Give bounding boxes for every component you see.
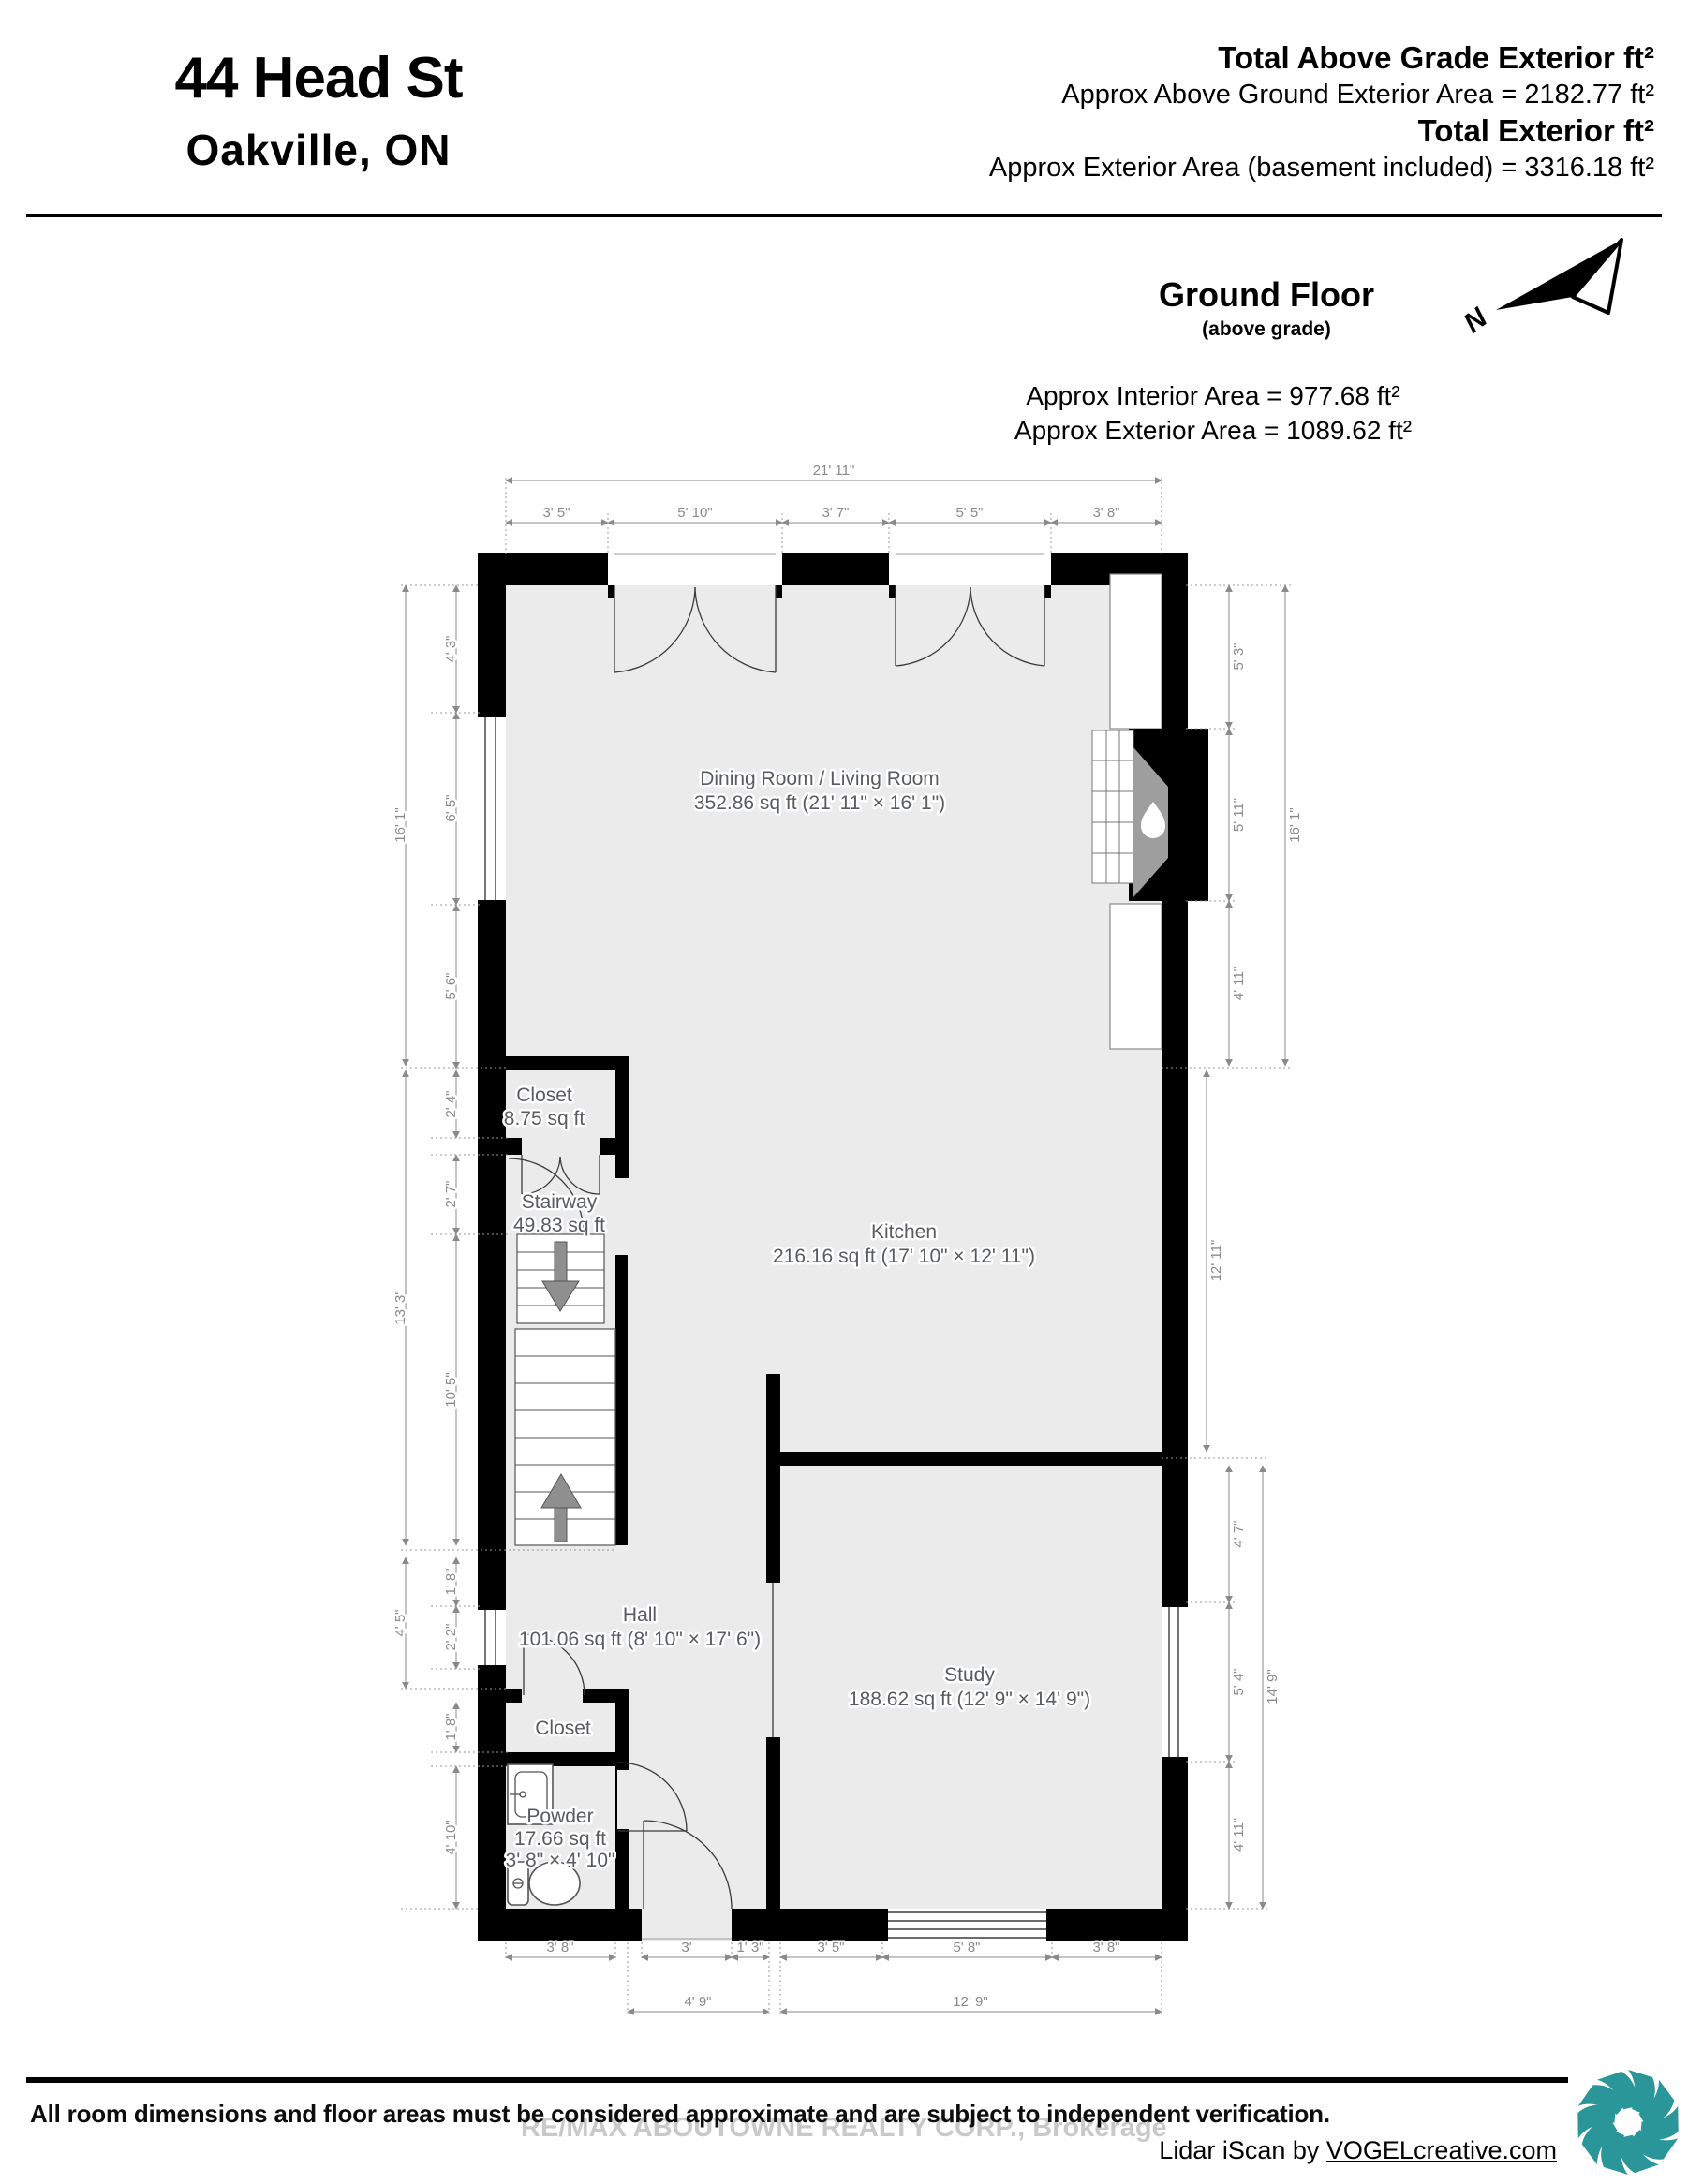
builtin-cabinet-bottom xyxy=(1110,904,1162,1049)
dim-left-6: 10' 5" xyxy=(443,1372,459,1407)
stairway-stairs xyxy=(515,1234,615,1545)
hall-area: 101.06 sq ft (8' 10" × 17' 6") xyxy=(519,1629,761,1650)
closet-lower-label: Closet xyxy=(535,1718,591,1739)
builtin-cabinet-top xyxy=(1110,574,1162,729)
dim-right-2: 5' 11" xyxy=(1231,798,1247,832)
study-area: 188.62 sq ft (12' 9" × 14' 9") xyxy=(849,1689,1090,1710)
dim-right-6: 4' 11" xyxy=(1231,1818,1247,1852)
living-room-window xyxy=(478,713,506,905)
dim-left-3: 5' 6" xyxy=(443,972,459,999)
hall-window xyxy=(478,1606,506,1669)
dim-right-kitchen: 12' 11" xyxy=(1208,1240,1224,1282)
footer-divider xyxy=(26,2077,1568,2083)
closet-upper-label: Closet xyxy=(516,1085,572,1106)
dim-right-1: 5' 3" xyxy=(1231,642,1247,670)
dim-left-8: 2' 2" xyxy=(443,1623,459,1650)
disclaimer-text: All room dimensions and floor areas must… xyxy=(30,2100,1330,2129)
stairway-area: 49.83 sq ft xyxy=(513,1215,605,1236)
powder-area: 17.66 sq ft xyxy=(514,1828,606,1850)
dim-left-1: 4' 3" xyxy=(443,635,459,662)
credit-prefix: Lidar iScan by xyxy=(1159,2136,1326,2164)
dim-right-3: 4' 11" xyxy=(1231,967,1247,1000)
vogelcreative-link[interactable]: VOGELcreative.com xyxy=(1326,2136,1557,2164)
study-side-window xyxy=(1162,1602,1188,1762)
powder-label: Powder xyxy=(526,1806,593,1827)
stairway-label: Stairway xyxy=(522,1191,598,1213)
powder-door-gap xyxy=(617,1770,629,1829)
dim-right-4: 4' 7" xyxy=(1231,1520,1247,1547)
dim-left-5: 2' 7" xyxy=(443,1180,459,1207)
dim-bottom-3: 1' 3" xyxy=(736,1940,763,1955)
dim-left-outer-3: 4' 5" xyxy=(392,1609,408,1636)
dim-bottom-6: 3' 8" xyxy=(1092,1940,1119,1955)
dining-room-area: 352.86 sq ft (21' 11" × 16' 1") xyxy=(694,792,945,814)
front-door-gap xyxy=(642,1911,732,1941)
dim-right-5: 5' 4" xyxy=(1231,1668,1247,1695)
dim-left-10: 4' 10" xyxy=(443,1820,459,1854)
credit-line: Lidar iScan by VOGELcreative.com xyxy=(0,2136,1557,2165)
north-label: N xyxy=(1458,302,1493,339)
dim-bottom-5: 5' 8" xyxy=(953,1940,980,1955)
dim-right-study-overall: 14' 9" xyxy=(1265,1669,1281,1704)
dim-left-outer-2: 13' 3" xyxy=(392,1290,408,1324)
fireplace-hearth-tiles xyxy=(1092,730,1133,883)
dim-left-9: 1' 8" xyxy=(443,1713,459,1740)
dim-bottom-study-overall: 12' 9" xyxy=(953,1994,987,2010)
dim-right-dining-overall: 16' 1" xyxy=(1287,807,1303,842)
stairs-down-arrow xyxy=(555,1242,567,1281)
vogelcreative-logo-icon xyxy=(1570,2064,1686,2180)
dim-top-1: 3' 5" xyxy=(542,505,570,521)
hall-label: Hall xyxy=(623,1604,657,1626)
dim-top-2: 5' 10" xyxy=(677,505,712,521)
dim-left-4: 2' 4" xyxy=(443,1090,459,1117)
floorplan-page: 44 Head St Oakville, ON Total Above Grad… xyxy=(0,0,1688,2184)
north-arrow-icon: N xyxy=(1458,240,1621,339)
kitchen-area: 216.16 sq ft (17' 10" × 12' 11") xyxy=(773,1246,1035,1267)
dim-bottom-hall-overall: 4' 9" xyxy=(684,1994,711,2010)
study-label: Study xyxy=(944,1664,995,1686)
dining-room-label: Dining Room / Living Room xyxy=(700,768,940,789)
dim-left-outer-1: 16' 1" xyxy=(392,807,408,842)
closet-upper-area: 8.75 sq ft xyxy=(504,1108,585,1129)
dim-left-7: 1' 8" xyxy=(443,1568,459,1595)
dim-left-2: 6' 5" xyxy=(443,794,459,821)
floorplan-drawing: 21' 11" 3' 5" 5' 10" 3' 7" 5' 5" 3' 8" 1… xyxy=(0,0,1688,2184)
dim-bottom-4: 3' 5" xyxy=(817,1940,844,1955)
dim-top-overall: 21' 11" xyxy=(813,463,855,479)
fireplace xyxy=(1092,729,1208,901)
dim-top-5: 3' 8" xyxy=(1092,505,1119,521)
dim-bottom-1: 3' 8" xyxy=(546,1940,573,1955)
kitchen-label: Kitchen xyxy=(871,1221,937,1243)
powder-size: 3' 8" × 4' 10" xyxy=(506,1850,615,1871)
study-bottom-window xyxy=(882,1909,1052,1941)
dim-bottom-2: 3' xyxy=(681,1940,691,1955)
dim-top-4: 5' 5" xyxy=(955,505,983,521)
dim-top-3: 3' 7" xyxy=(822,505,849,521)
